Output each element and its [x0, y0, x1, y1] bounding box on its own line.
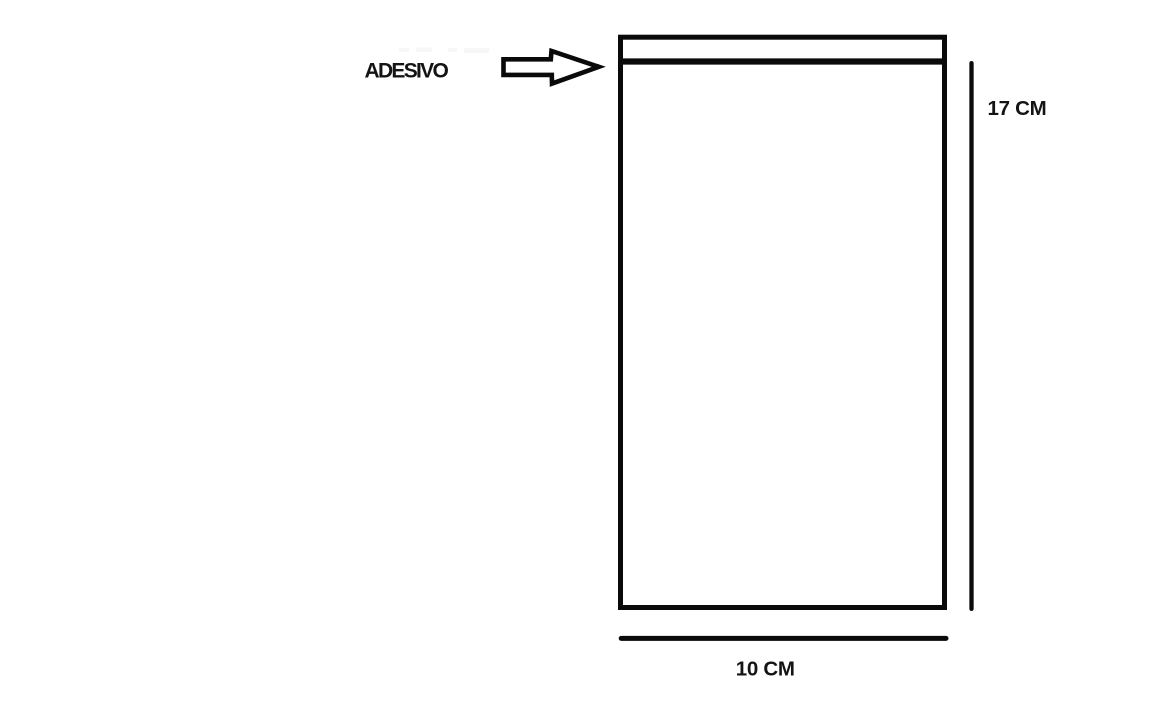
svg-text:17 CM: 17 CM: [988, 97, 1047, 120]
svg-text:10 CM: 10 CM: [736, 658, 795, 681]
svg-text:ADESIVO: ADESIVO: [365, 60, 449, 83]
